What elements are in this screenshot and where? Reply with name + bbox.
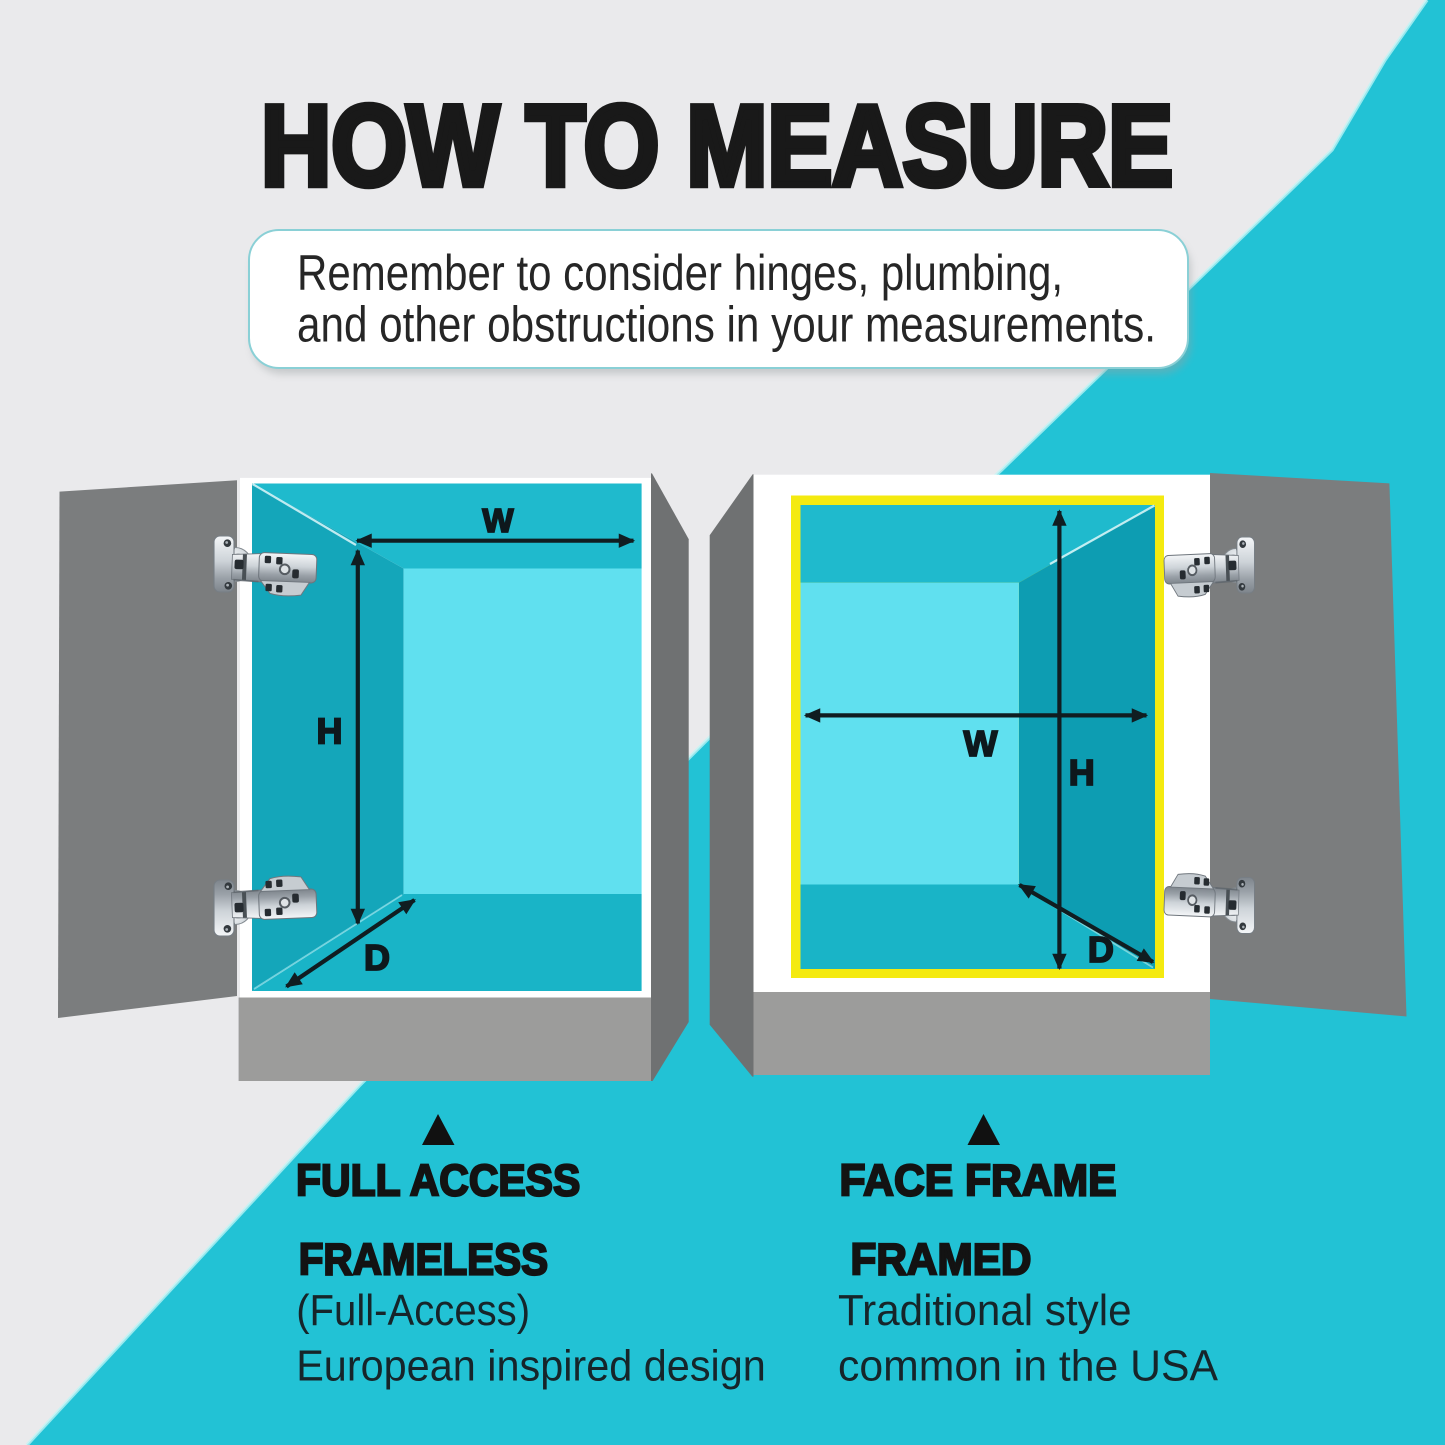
svg-text:FRAMED: FRAMED <box>851 1236 1032 1285</box>
svg-text:FRAMELESS: FRAMELESS <box>299 1236 548 1285</box>
svg-text:FACE FRAME: FACE FRAME <box>840 1156 1117 1205</box>
svg-text:common in the USA: common in the USA <box>838 1342 1219 1391</box>
svg-text:HOW TO MEASURE: HOW TO MEASURE <box>261 83 1173 210</box>
svg-text:and other obstructions in your: and other obstructions in your measureme… <box>297 297 1156 353</box>
svg-text:Traditional style: Traditional style <box>838 1286 1132 1335</box>
svg-text:W: W <box>482 502 514 539</box>
svg-text:H: H <box>1069 752 1095 793</box>
svg-text:D: D <box>364 937 390 978</box>
svg-text:D: D <box>1088 929 1114 970</box>
svg-text:European inspired design: European inspired design <box>296 1342 766 1391</box>
svg-text:Remember to consider hinges, p: Remember to consider hinges, plumbing, <box>297 245 1063 301</box>
svg-text:(Full-Access): (Full-Access) <box>296 1286 530 1335</box>
svg-text:FULL ACCESS: FULL ACCESS <box>296 1156 580 1205</box>
svg-text:W: W <box>964 723 998 764</box>
svg-text:H: H <box>317 711 343 752</box>
